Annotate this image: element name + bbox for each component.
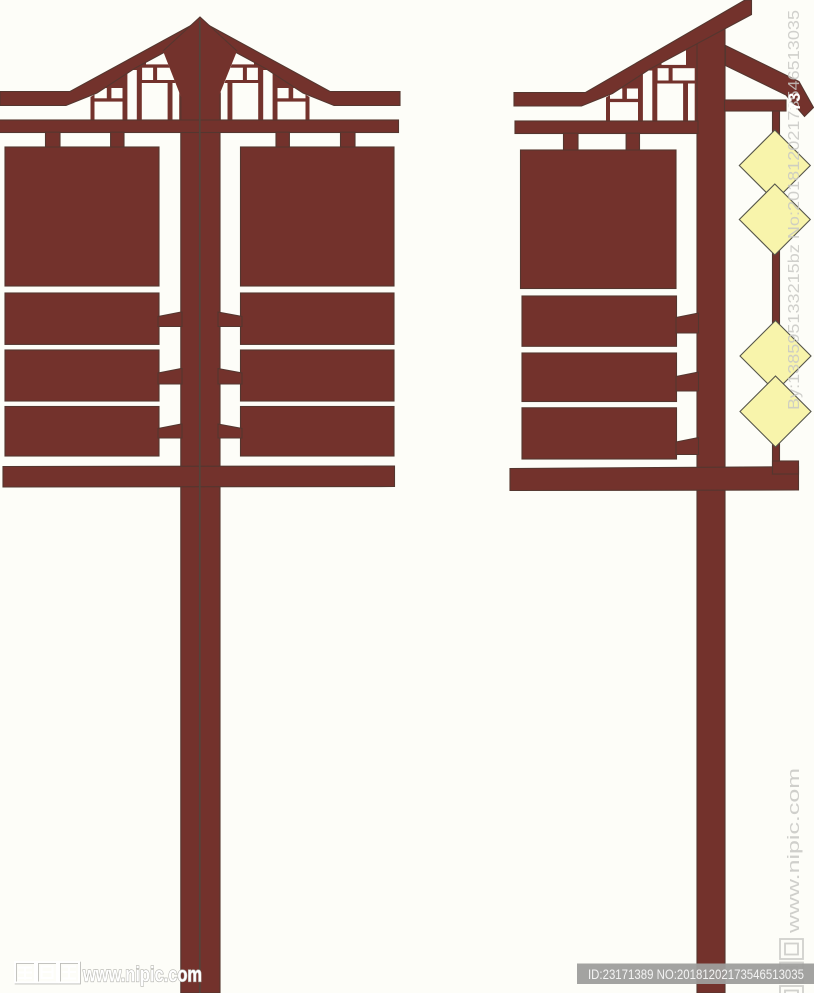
svg-text:www.nipic.com: www.nipic.com <box>82 964 202 987</box>
svg-text:By:138595133215bz No:201812021: By:138595133215bz No:2018120217354651303… <box>786 10 803 410</box>
svg-text:73: 73 <box>786 93 804 111</box>
svg-text:www.nipic.com: www.nipic.com <box>784 768 803 934</box>
svg-text:ID:23171389 NO:201812021735465: ID:23171389 NO:20181202173546513035 <box>588 967 804 982</box>
